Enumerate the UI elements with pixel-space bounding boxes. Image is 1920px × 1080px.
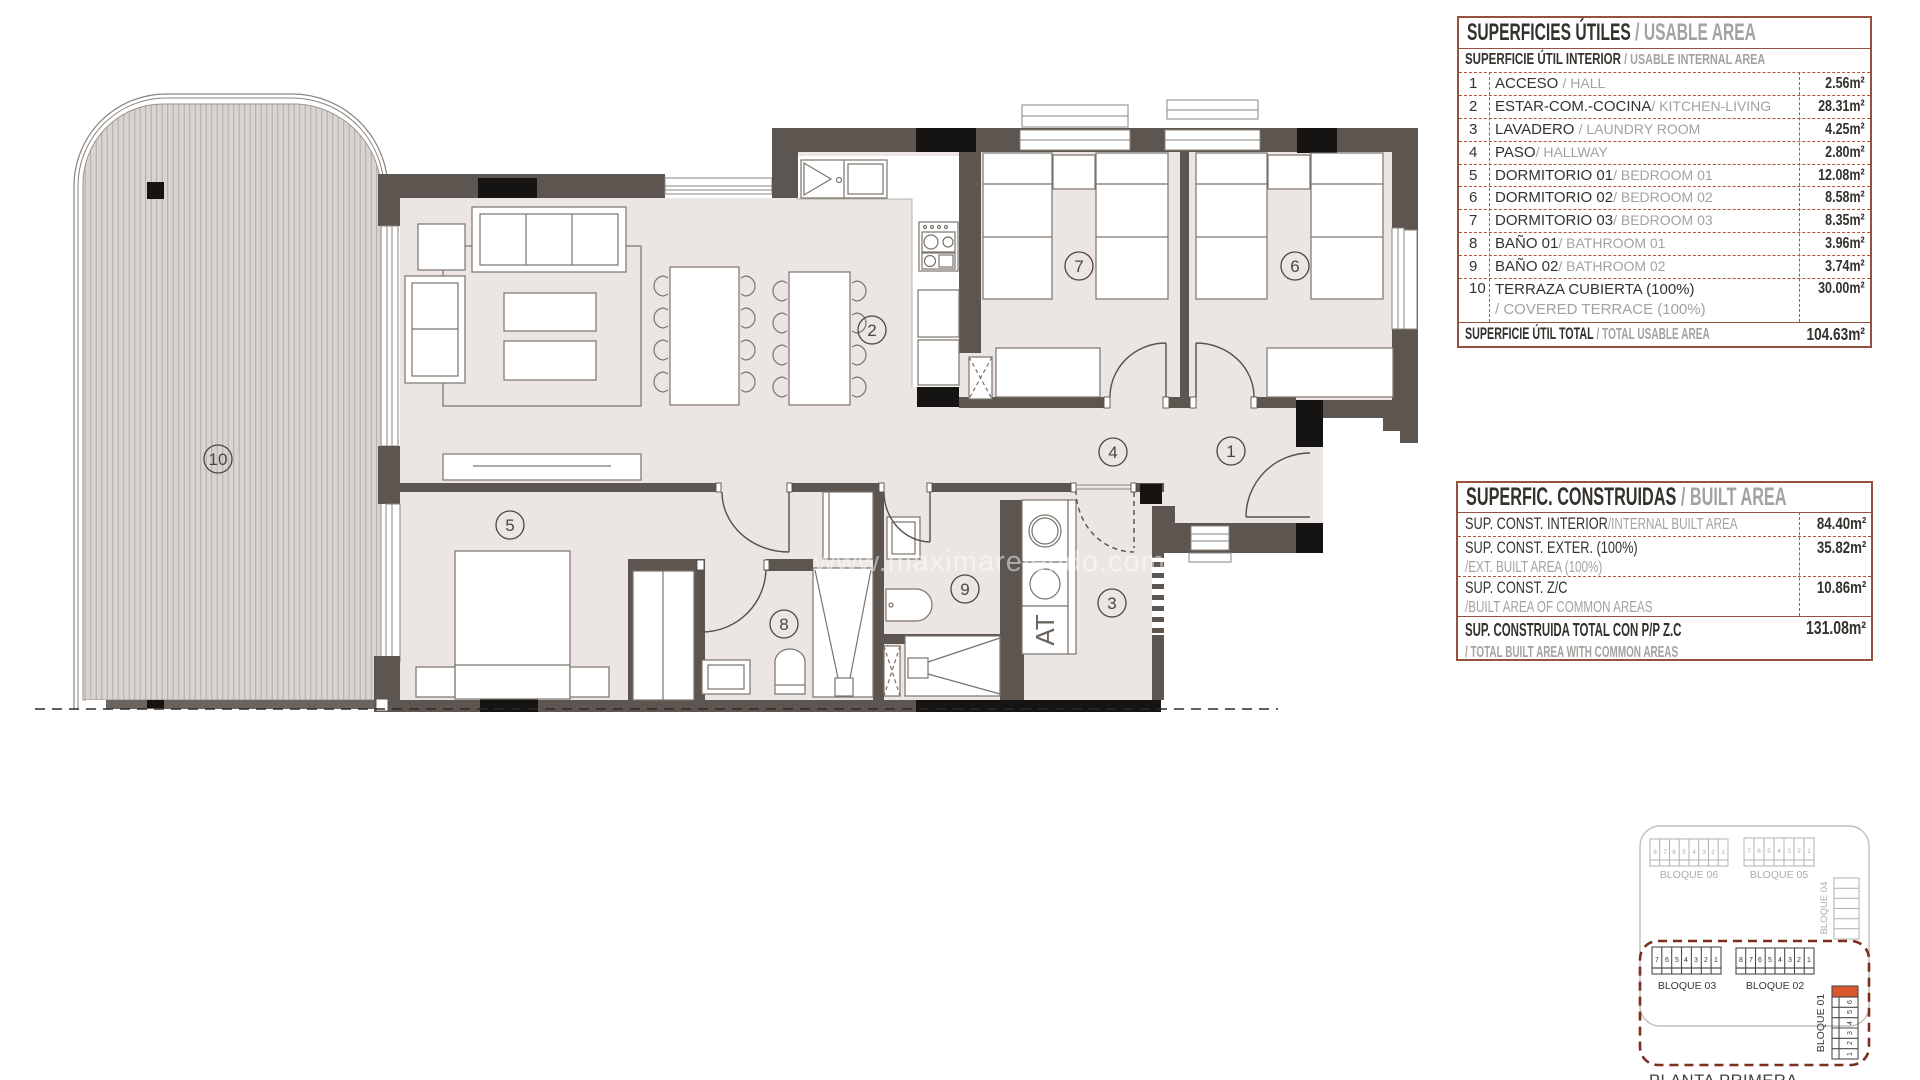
svg-text:10: 10 (209, 450, 228, 469)
svg-text:1: 1 (1807, 957, 1811, 964)
svg-text:4: 4 (1684, 957, 1688, 964)
svg-text:6: 6 (1757, 848, 1761, 855)
svg-text:BLOQUE 01: BLOQUE 01 (1815, 994, 1827, 1053)
svg-text:4: 4 (1778, 957, 1782, 964)
svg-text:PLANTA PRIMERA: PLANTA PRIMERA (1649, 1072, 1798, 1080)
svg-text:4: 4 (1692, 849, 1696, 856)
svg-text:BLOQUE 05: BLOQUE 05 (1750, 869, 1809, 881)
svg-text:5: 5 (1847, 1010, 1854, 1014)
svg-text:3: 3 (1107, 594, 1116, 613)
svg-text:7: 7 (1749, 957, 1753, 964)
svg-text:3: 3 (1702, 849, 1706, 856)
svg-text:5: 5 (1768, 957, 1772, 964)
svg-text:2: 2 (867, 321, 876, 340)
svg-text:8: 8 (1653, 849, 1657, 856)
svg-text:3: 3 (1694, 957, 1698, 964)
svg-text:2: 2 (1797, 957, 1801, 964)
svg-text:5: 5 (1767, 848, 1771, 855)
svg-text:6: 6 (1672, 849, 1676, 856)
svg-text:6: 6 (1847, 1000, 1854, 1004)
svg-text:4: 4 (1847, 1021, 1854, 1025)
svg-text:4: 4 (1108, 443, 1117, 462)
svg-text:BLOQUE 02: BLOQUE 02 (1746, 980, 1805, 992)
svg-text:1: 1 (1714, 957, 1718, 964)
svg-text:2: 2 (1847, 1041, 1854, 1045)
svg-text:4: 4 (1777, 848, 1781, 855)
svg-text:8: 8 (1739, 957, 1743, 964)
svg-text:BLOQUE 03: BLOQUE 03 (1658, 980, 1717, 992)
svg-text:7: 7 (1655, 957, 1659, 964)
svg-text:7: 7 (1663, 849, 1667, 856)
svg-text:1: 1 (1226, 442, 1235, 461)
svg-text:AT: AT (1030, 614, 1060, 645)
svg-text:5: 5 (505, 516, 514, 535)
svg-text:3: 3 (1847, 1031, 1854, 1035)
svg-text:8: 8 (779, 615, 788, 634)
svg-text:6: 6 (1665, 957, 1669, 964)
svg-text:BLOQUE 06: BLOQUE 06 (1660, 869, 1719, 881)
svg-text:5: 5 (1675, 957, 1679, 964)
svg-text:9: 9 (960, 580, 969, 599)
svg-text:3: 3 (1788, 957, 1792, 964)
svg-text:1: 1 (1807, 848, 1811, 855)
svg-text:5: 5 (1682, 849, 1686, 856)
svg-text:6: 6 (1290, 257, 1299, 276)
svg-text:3: 3 (1787, 848, 1791, 855)
svg-text:7: 7 (1747, 848, 1751, 855)
svg-text:7: 7 (1074, 257, 1083, 276)
svg-text:2: 2 (1711, 849, 1715, 856)
svg-text:www.maximareiendo.com: www.maximareiendo.com (813, 546, 1165, 578)
svg-text:2: 2 (1704, 957, 1708, 964)
svg-text:6: 6 (1758, 957, 1762, 964)
svg-text:2: 2 (1797, 848, 1801, 855)
svg-text:BLOQUE 04: BLOQUE 04 (1819, 882, 1830, 935)
svg-text:1: 1 (1721, 849, 1725, 856)
svg-text:1: 1 (1847, 1052, 1854, 1056)
